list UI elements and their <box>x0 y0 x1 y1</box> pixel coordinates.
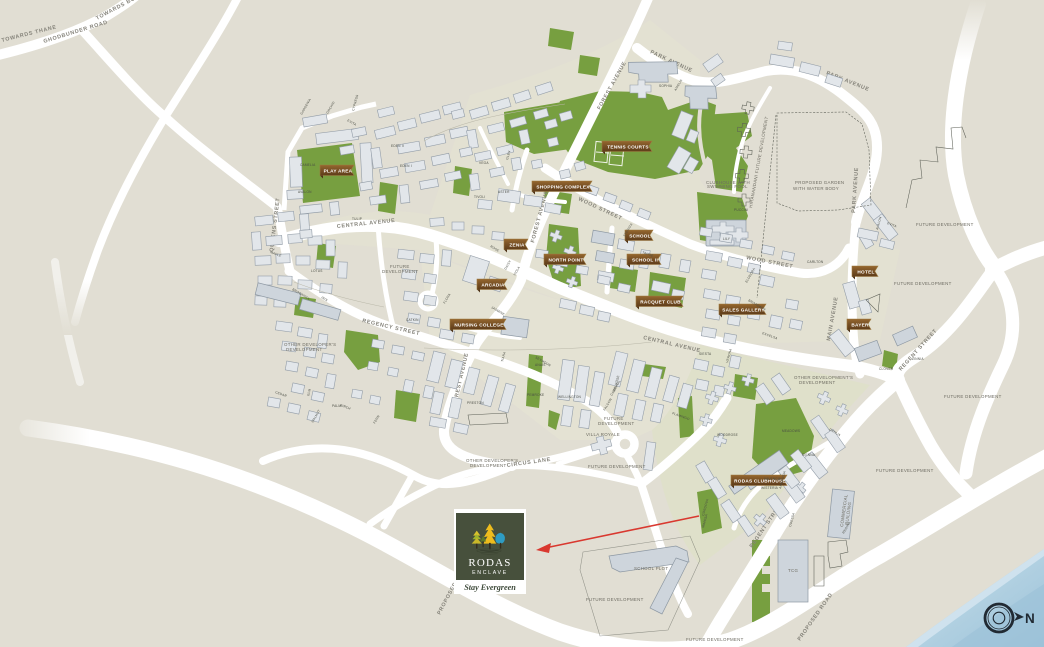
svg-text:EDEN I: EDEN I <box>400 164 412 168</box>
svg-text:ZENIA: ZENIA <box>509 242 525 247</box>
svg-text:WISTERIA: WISTERIA <box>761 486 779 490</box>
svg-text:SCHOOL II: SCHOOL II <box>632 257 658 262</box>
svg-text:SOPHIA: SOPHIA <box>659 84 673 88</box>
svg-text:PRESTON: PRESTON <box>467 401 484 405</box>
svg-text:ASTER: ASTER <box>498 190 510 194</box>
svg-text:PUCCINI: PUCCINI <box>734 208 749 212</box>
svg-text:ANAIS: ANAIS <box>535 363 546 367</box>
svg-text:DEVELOPMENT: DEVELOPMENT <box>382 269 418 274</box>
svg-text:VILLA ROYALE: VILLA ROYALE <box>586 432 620 437</box>
svg-text:DEVELOPMENT: DEVELOPMENT <box>799 380 835 385</box>
svg-text:FUTURE DEVELOPMENT: FUTURE DEVELOPMENT <box>586 597 644 602</box>
svg-text:ARCADIA: ARCADIA <box>481 282 505 287</box>
svg-text:PLAY AREA: PLAY AREA <box>324 168 353 173</box>
svg-text:VALENCIA: VALENCIA <box>764 477 782 481</box>
svg-text:SHOPPING COMPLEX: SHOPPING COMPLEX <box>536 184 590 189</box>
svg-text:FUTURE DEVELOPMENT: FUTURE DEVELOPMENT <box>876 468 934 473</box>
svg-text:WELLINGTON: WELLINGTON <box>558 395 582 399</box>
svg-text:PALM: PALM <box>332 404 341 408</box>
svg-text:SCHOOL: SCHOOL <box>629 233 651 238</box>
svg-text:FUTURE DEVELOPMENT: FUTURE DEVELOPMENT <box>686 637 744 642</box>
svg-text:FUTURE DEVELOPMENT: FUTURE DEVELOPMENT <box>916 222 974 227</box>
svg-text:RACQUET CLUB: RACQUET CLUB <box>640 299 681 304</box>
svg-text:FUTURE DEVELOPMENT: FUTURE DEVELOPMENT <box>894 281 952 286</box>
svg-text:NORTH POINT: NORTH POINT <box>548 257 583 262</box>
svg-text:VEGA: VEGA <box>479 161 489 165</box>
svg-text:ENCLAVE: ENCLAVE <box>472 570 508 576</box>
svg-text:CLOVER: CLOVER <box>879 367 894 371</box>
svg-text:WITH WATER BODY: WITH WATER BODY <box>793 186 839 191</box>
svg-text:EDEN II: EDEN II <box>391 144 404 148</box>
svg-text:AVALON: AVALON <box>298 190 312 194</box>
svg-text:PROPOSED GARDEN: PROPOSED GARDEN <box>795 180 844 185</box>
svg-text:WOODROSE: WOODROSE <box>717 433 738 437</box>
svg-text:CARLTON: CARLTON <box>807 260 824 264</box>
svg-text:Stay Evergreen: Stay Evergreen <box>464 583 516 592</box>
svg-text:FUTURE DEVELOPMENT: FUTURE DEVELOPMENT <box>944 394 1002 399</box>
svg-text:TIVOLI: TIVOLI <box>474 195 485 199</box>
svg-text:SIESTA: SIESTA <box>699 352 712 356</box>
svg-text:TULIP: TULIP <box>352 217 362 221</box>
svg-text:NURSING COLLEGE: NURSING COLLEGE <box>454 322 503 327</box>
svg-text:PEMROKE: PEMROKE <box>527 393 544 397</box>
svg-text:ZINNIA: ZINNIA <box>912 357 924 361</box>
svg-text:TENNIS COURTS: TENNIS COURTS <box>607 144 649 149</box>
svg-text:SCHOOL PLOT: SCHOOL PLOT <box>634 566 668 571</box>
svg-text:N: N <box>1025 611 1035 626</box>
svg-text:LOTUS: LOTUS <box>311 269 323 273</box>
svg-text:BAYER: BAYER <box>851 322 869 327</box>
svg-text:FUTURE DEVELOPMENT: FUTURE DEVELOPMENT <box>588 464 646 469</box>
svg-text:TCG: TCG <box>788 568 798 573</box>
svg-text:SIENNA: SIENNA <box>802 453 816 457</box>
svg-text:DEVELOPMENT: DEVELOPMENT <box>470 463 506 468</box>
svg-text:CATKIN: CATKIN <box>406 318 419 322</box>
svg-text:SWIMMING POOL: SWIMMING POOL <box>707 184 748 189</box>
svg-text:DEVELOPMENT: DEVELOPMENT <box>598 421 634 426</box>
svg-text:RODAS: RODAS <box>468 557 511 569</box>
svg-text:MEADOWS: MEADOWS <box>782 429 800 433</box>
svg-text:DEVELOPMENT: DEVELOPMENT <box>286 347 322 352</box>
svg-text:HOTEL: HOTEL <box>857 269 874 274</box>
svg-text:CAMELIA: CAMELIA <box>300 163 316 167</box>
svg-text:LILY: LILY <box>723 237 731 241</box>
